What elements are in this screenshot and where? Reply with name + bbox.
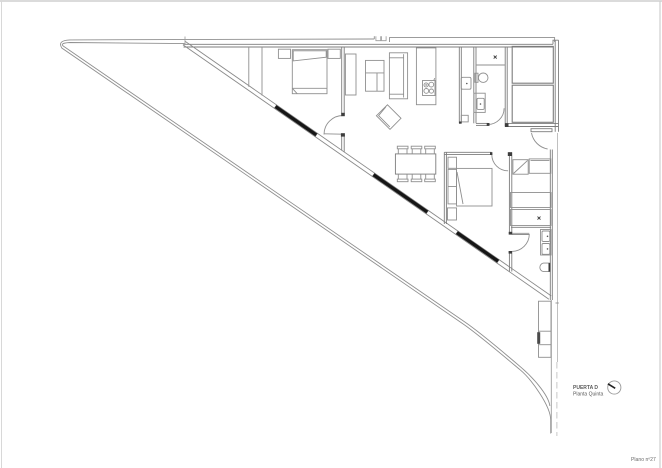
svg-text:Planta Quinta: Planta Quinta: [573, 392, 604, 398]
svg-text:PUERTA D: PUERTA D: [573, 385, 598, 391]
svg-text:Plano nº27: Plano nº27: [631, 457, 656, 463]
